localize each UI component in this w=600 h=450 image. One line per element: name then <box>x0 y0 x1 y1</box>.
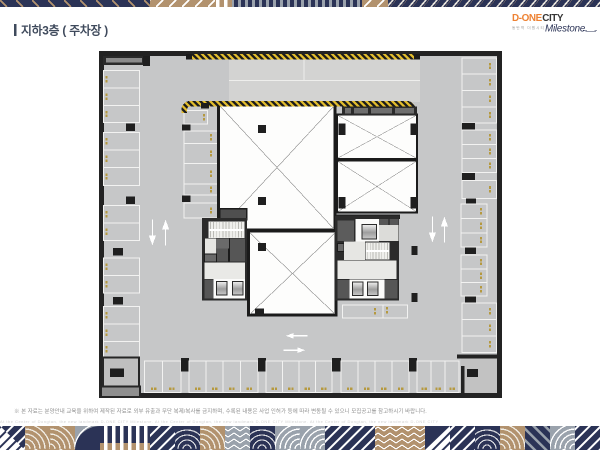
svg-text:동탄역 더원시티: 동탄역 더원시티 <box>512 25 545 30</box>
svg-text:지하3층 ( 주차장 ): 지하3층 ( 주차장 ) <box>21 24 108 38</box>
svg-text:Milestone: Milestone <box>545 24 586 35</box>
svg-text:D-ONECITY: D-ONECITY <box>512 13 564 24</box>
